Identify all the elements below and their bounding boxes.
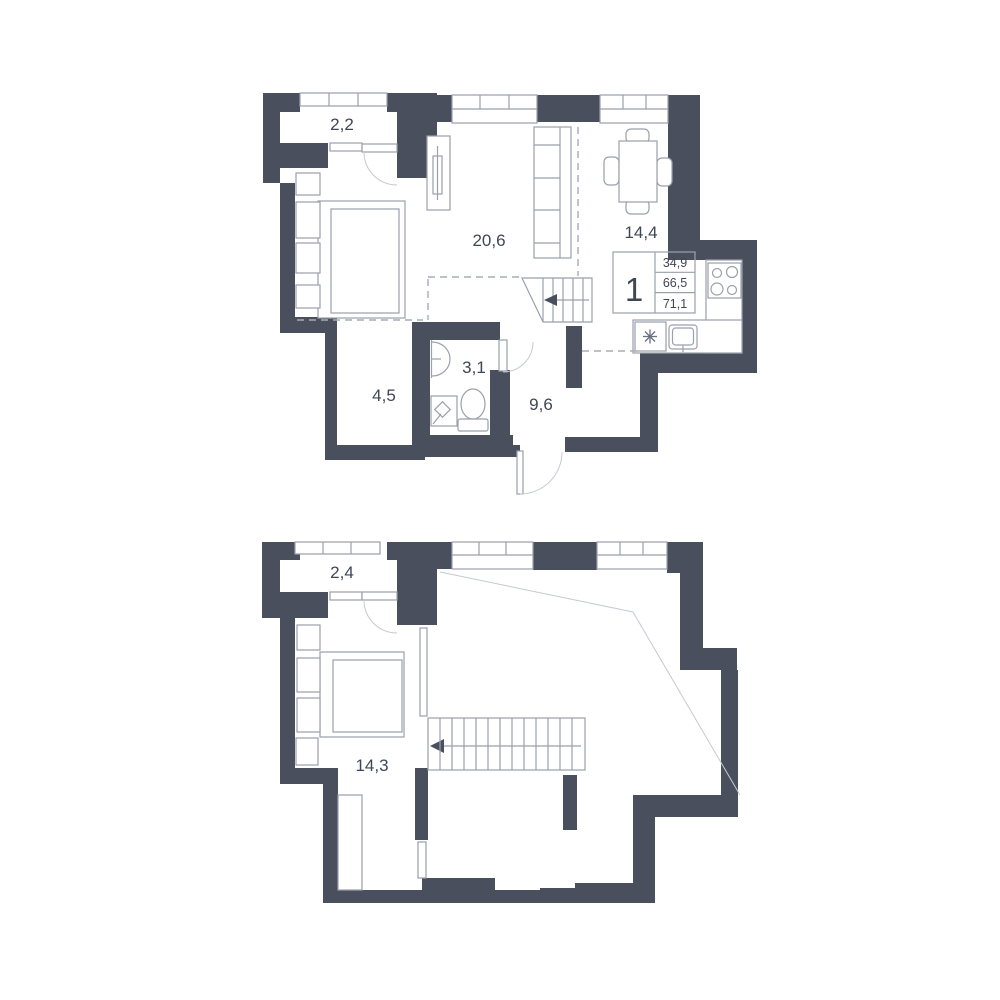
- wall-segment: [280, 317, 337, 333]
- room-label-entry: 9,6: [529, 395, 553, 414]
- balcony-door-icon: [362, 144, 397, 185]
- stove-icon: [708, 263, 741, 298]
- wall-segment: [325, 445, 425, 460]
- window-icon: [597, 542, 667, 569]
- wall-segment: [280, 768, 338, 784]
- window-icon: [452, 542, 533, 569]
- stairs-icon: [428, 718, 585, 770]
- wall-segment: [566, 326, 582, 388]
- wall-segment: [565, 437, 658, 452]
- wall-segment: [415, 768, 428, 840]
- wall-segment: [575, 883, 655, 903]
- wall-segment: [263, 93, 280, 183]
- room-label-balcony: 2,4: [330, 563, 354, 582]
- bed-icon: [296, 625, 404, 765]
- wall-segment: [412, 340, 430, 450]
- balcony-door-icon: [362, 592, 397, 633]
- wall-segment: [667, 542, 703, 573]
- wall-segment: [640, 353, 757, 373]
- glass-rail-icon: [420, 628, 427, 716]
- wall-segment: [540, 888, 585, 903]
- wall-segment: [563, 775, 577, 830]
- wall-segment: [262, 592, 328, 618]
- room-label-dining: 14,4: [624, 223, 657, 242]
- sofa-icon: [534, 127, 571, 258]
- wall-segment: [640, 373, 658, 440]
- window-icon: [330, 143, 362, 151]
- wall-segment: [422, 878, 495, 891]
- floor-plan-level-2: 2,4 14,3: [262, 542, 740, 903]
- entry-door-icon: [517, 451, 562, 494]
- wall-segment: [668, 95, 700, 245]
- window-icon: [452, 95, 537, 123]
- window-icon: [600, 95, 668, 123]
- wall-segment: [537, 95, 600, 122]
- floor-plan-level-1: 1 34,9 66,5 71,1 2,2 20,6 14,4 4,5 3,1 9…: [263, 93, 757, 494]
- windows-level-1: [300, 93, 668, 151]
- wall-segment: [397, 560, 437, 625]
- room-label-balcony: 2,2: [330, 115, 354, 134]
- toilet-icon: [458, 389, 488, 431]
- wall-segment: [387, 93, 437, 112]
- room-label-room: 14,3: [355, 756, 388, 775]
- appliance-asterisk-icon: [635, 322, 666, 351]
- wall-segment: [437, 95, 452, 122]
- area-value-full: 71,1: [663, 297, 687, 311]
- floor-plan-drawing: 1 34,9 66,5 71,1 2,2 20,6 14,4 4,5 3,1 9…: [0, 0, 1000, 1000]
- wall-segment: [412, 322, 500, 340]
- glass-rail-icon: [418, 842, 426, 878]
- wall-segment: [280, 618, 295, 768]
- wall-segment: [490, 370, 510, 435]
- wardrobe-icon: [338, 795, 362, 890]
- window-icon: [330, 592, 362, 600]
- wall-segment: [703, 648, 737, 670]
- balcony-railing-icon: [300, 93, 387, 106]
- stairs-icon: [522, 278, 592, 322]
- wall-segment: [387, 542, 437, 560]
- floor-plan-page: 1 34,9 66,5 71,1 2,2 20,6 14,4 4,5 3,1 9…: [0, 0, 1000, 1000]
- washbasin-icon: [432, 340, 451, 378]
- kitchen-sink-icon: [669, 325, 697, 352]
- wall-segment: [533, 542, 597, 570]
- dining-table-icon: [604, 129, 672, 214]
- balcony-railing-icon: [295, 542, 380, 554]
- washing-machine-icon: [431, 396, 457, 426]
- area-value-total: 66,5: [663, 276, 687, 290]
- wall-segment: [263, 143, 328, 168]
- tv-stand-icon: [427, 136, 450, 210]
- wall-segment: [280, 183, 295, 322]
- wall-segment: [323, 780, 338, 892]
- wall-segment: [412, 435, 513, 457]
- area-value-living: 34,9: [663, 256, 687, 270]
- bed-icon: [296, 173, 405, 318]
- wall-segment: [325, 333, 337, 448]
- wall-segment: [323, 890, 540, 903]
- wall-segment: [437, 542, 452, 569]
- room-count: 1: [625, 271, 643, 308]
- wall-segment: [680, 573, 703, 670]
- room-label-hall: 4,5: [372, 386, 396, 405]
- plan-info-box: 1 34,9 66,5 71,1: [613, 252, 695, 313]
- wall-segment: [633, 795, 655, 887]
- room-label-bathroom: 3,1: [462, 358, 486, 377]
- room-label-living: 20,6: [472, 231, 505, 250]
- bathroom-door-icon: [499, 340, 533, 372]
